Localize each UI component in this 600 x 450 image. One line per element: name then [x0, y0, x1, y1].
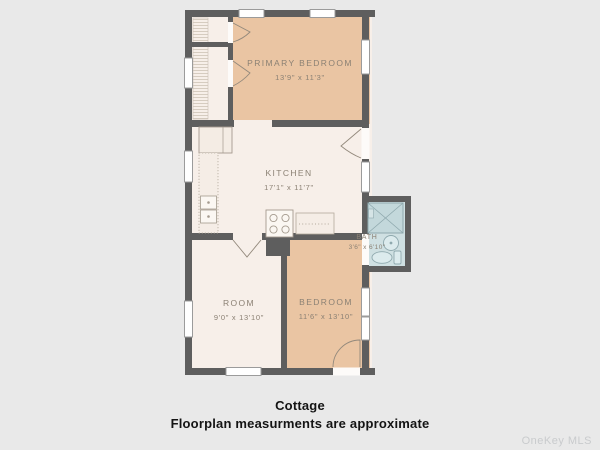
- wall-bath-bottom: [362, 266, 411, 272]
- primary-bedroom-doorway: [234, 120, 272, 127]
- pantry-cabinet: [199, 127, 232, 153]
- window-right-bedroom-1: [362, 288, 370, 316]
- wall-top: [185, 10, 375, 17]
- toilet-bowl: [372, 252, 392, 264]
- kitchen-counter-right: [296, 213, 334, 234]
- closet-door-gap-bottom: [228, 60, 233, 87]
- window-right-kitchen: [362, 162, 370, 192]
- window-left-closet: [185, 58, 193, 88]
- closet-door-gap-top: [228, 22, 233, 43]
- bedroom-floor: [283, 237, 370, 370]
- window-right-primary: [362, 40, 370, 74]
- window-right-bedroom-2: [362, 317, 370, 340]
- window-top-1: [239, 10, 264, 18]
- wall-bath-right: [405, 196, 411, 272]
- wall-closet-divider: [192, 42, 233, 47]
- wall-bath-top: [362, 196, 411, 202]
- floorplan-page: PRIMARY BEDROOM 13'9" x 11'3" KITCHEN 17…: [0, 0, 600, 450]
- room-door-gap: [233, 233, 262, 240]
- caption-title: Cottage: [0, 398, 600, 413]
- bedroom-exterior-door-gap: [333, 368, 360, 376]
- window-top-2: [310, 10, 335, 18]
- bath-door-gap: [362, 234, 369, 265]
- bath-fixtures: [368, 203, 403, 264]
- closet-shelves: [193, 18, 208, 119]
- kitchen-side-door-gap: [362, 128, 370, 159]
- window-bottom-room: [226, 368, 261, 376]
- wall-bedroom-kitchen: [192, 120, 368, 127]
- caption-subtitle: Floorplan measurments are approximate: [0, 416, 600, 431]
- bath-sink-drain: [390, 242, 393, 245]
- primary-bedroom-floor: [230, 14, 370, 124]
- watermark-onekey-mls: OneKey MLS: [522, 435, 592, 447]
- sink-drain-2: [207, 215, 210, 218]
- floors: [188, 13, 408, 372]
- shower-shelf: [369, 209, 374, 218]
- sink-drain-1: [207, 201, 210, 204]
- toilet-tank: [394, 251, 401, 264]
- stove: [266, 210, 293, 237]
- window-left-kitchen: [185, 151, 193, 182]
- window-left-room: [185, 301, 193, 337]
- caption: Cottage Floorplan measurments are approx…: [0, 398, 600, 431]
- floorplan-drawing: [0, 0, 600, 450]
- wall-room-bedroom: [281, 240, 287, 368]
